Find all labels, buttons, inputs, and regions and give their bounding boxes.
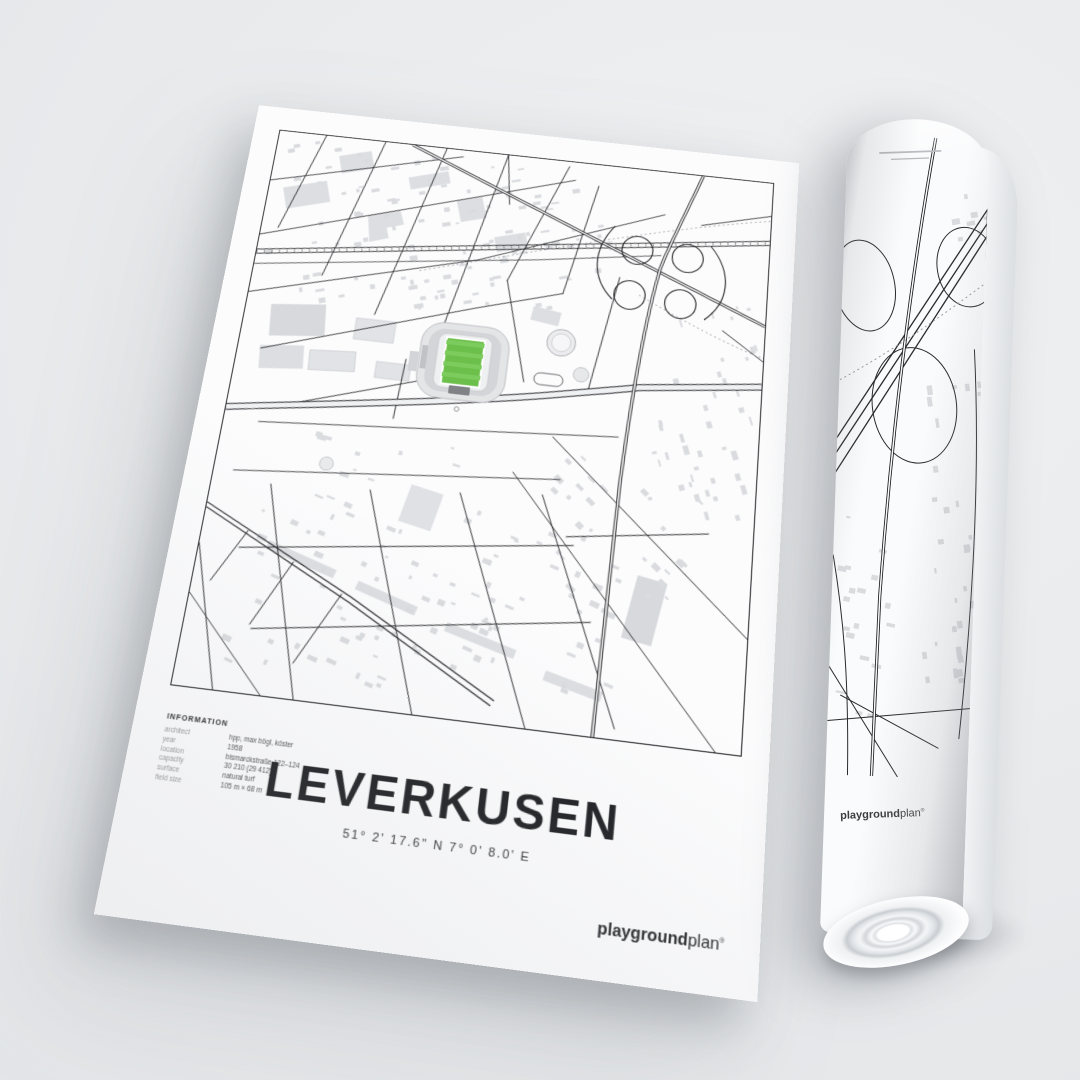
roll-brand-light: plan (900, 807, 921, 820)
poster-shadow-wrap: INFORMATION architect hpp, max bögl, kös… (180, 78, 780, 928)
rolled-poster: playgroundplan® (819, 117, 1031, 979)
brand-logo-bold: playground (597, 919, 689, 951)
brand-logo: playgroundplan® (597, 919, 725, 956)
map-motorways (324, 145, 773, 756)
roll-map-art (820, 135, 990, 781)
poster-sheet: INFORMATION architect hpp, max bögl, kös… (94, 105, 799, 1002)
roll-tube: playgroundplan® (820, 117, 990, 937)
map-pitch (441, 337, 486, 388)
map-frame (170, 130, 774, 757)
map-railway (254, 186, 770, 320)
map-streets (171, 131, 773, 756)
roll-registered-mark: ® (921, 807, 925, 813)
roll-brand-logo: playgroundplan® (840, 807, 925, 822)
roll-shadow-wrap: playgroundplan® (846, 120, 1028, 976)
roll-brand-bold: playground (840, 808, 900, 822)
brand-logo-light: plan (687, 930, 720, 954)
stadium-map (171, 131, 773, 756)
map-road-southwest (175, 502, 513, 706)
roll-map-speckles (832, 183, 990, 722)
mockup-scene: INFORMATION architect hpp, max bögl, kös… (0, 0, 1080, 1080)
registered-mark: ® (719, 938, 724, 946)
